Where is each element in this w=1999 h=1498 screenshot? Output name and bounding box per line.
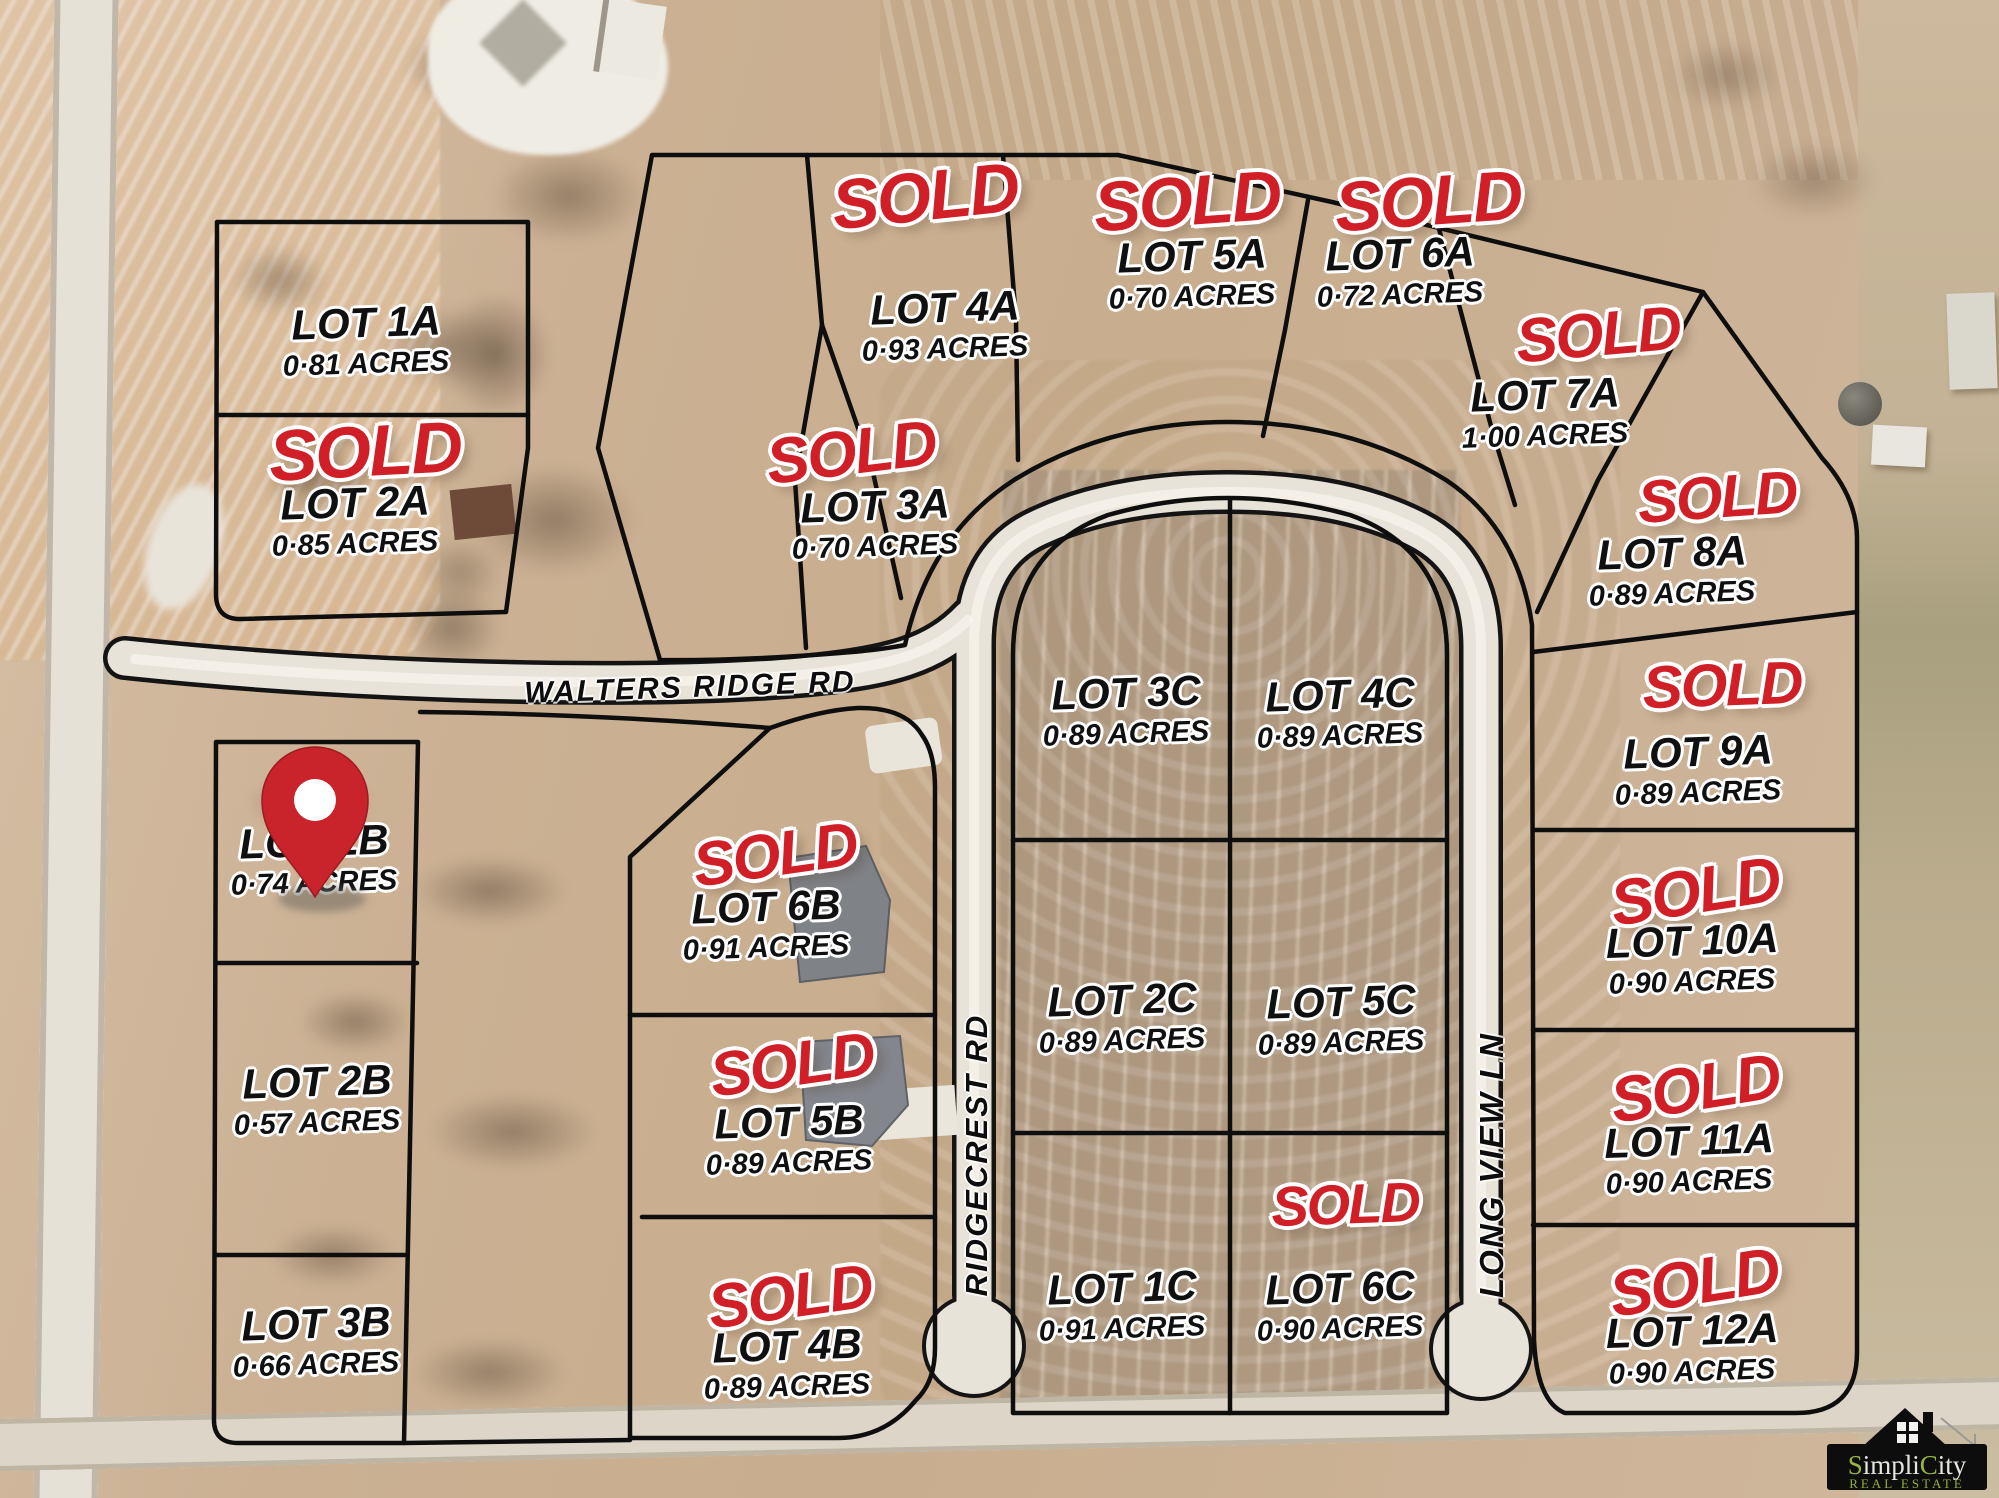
simplicity-logo-graphic: SimpliCity REAL ESTATE	[1823, 1400, 1998, 1495]
brokerage-logo[interactable]: SimpliCity REAL ESTATE	[1823, 1400, 1998, 1498]
house-window-pane	[1909, 1422, 1918, 1431]
house-window-pane	[1897, 1434, 1906, 1443]
house-outline-echo	[1941, 1418, 1975, 1446]
house-window-pane	[1909, 1434, 1918, 1443]
map-pin-shadow	[278, 886, 366, 912]
map-pin-icon[interactable]	[262, 747, 368, 897]
map-pin-layer	[0, 0, 1999, 1498]
brand-tagline: REAL ESTATE	[1849, 1476, 1965, 1491]
house-window-pane	[1897, 1422, 1906, 1431]
plat-map: WALTERS RIDGE RD RIDGECREST RD LONG VIEW…	[0, 0, 1999, 1498]
